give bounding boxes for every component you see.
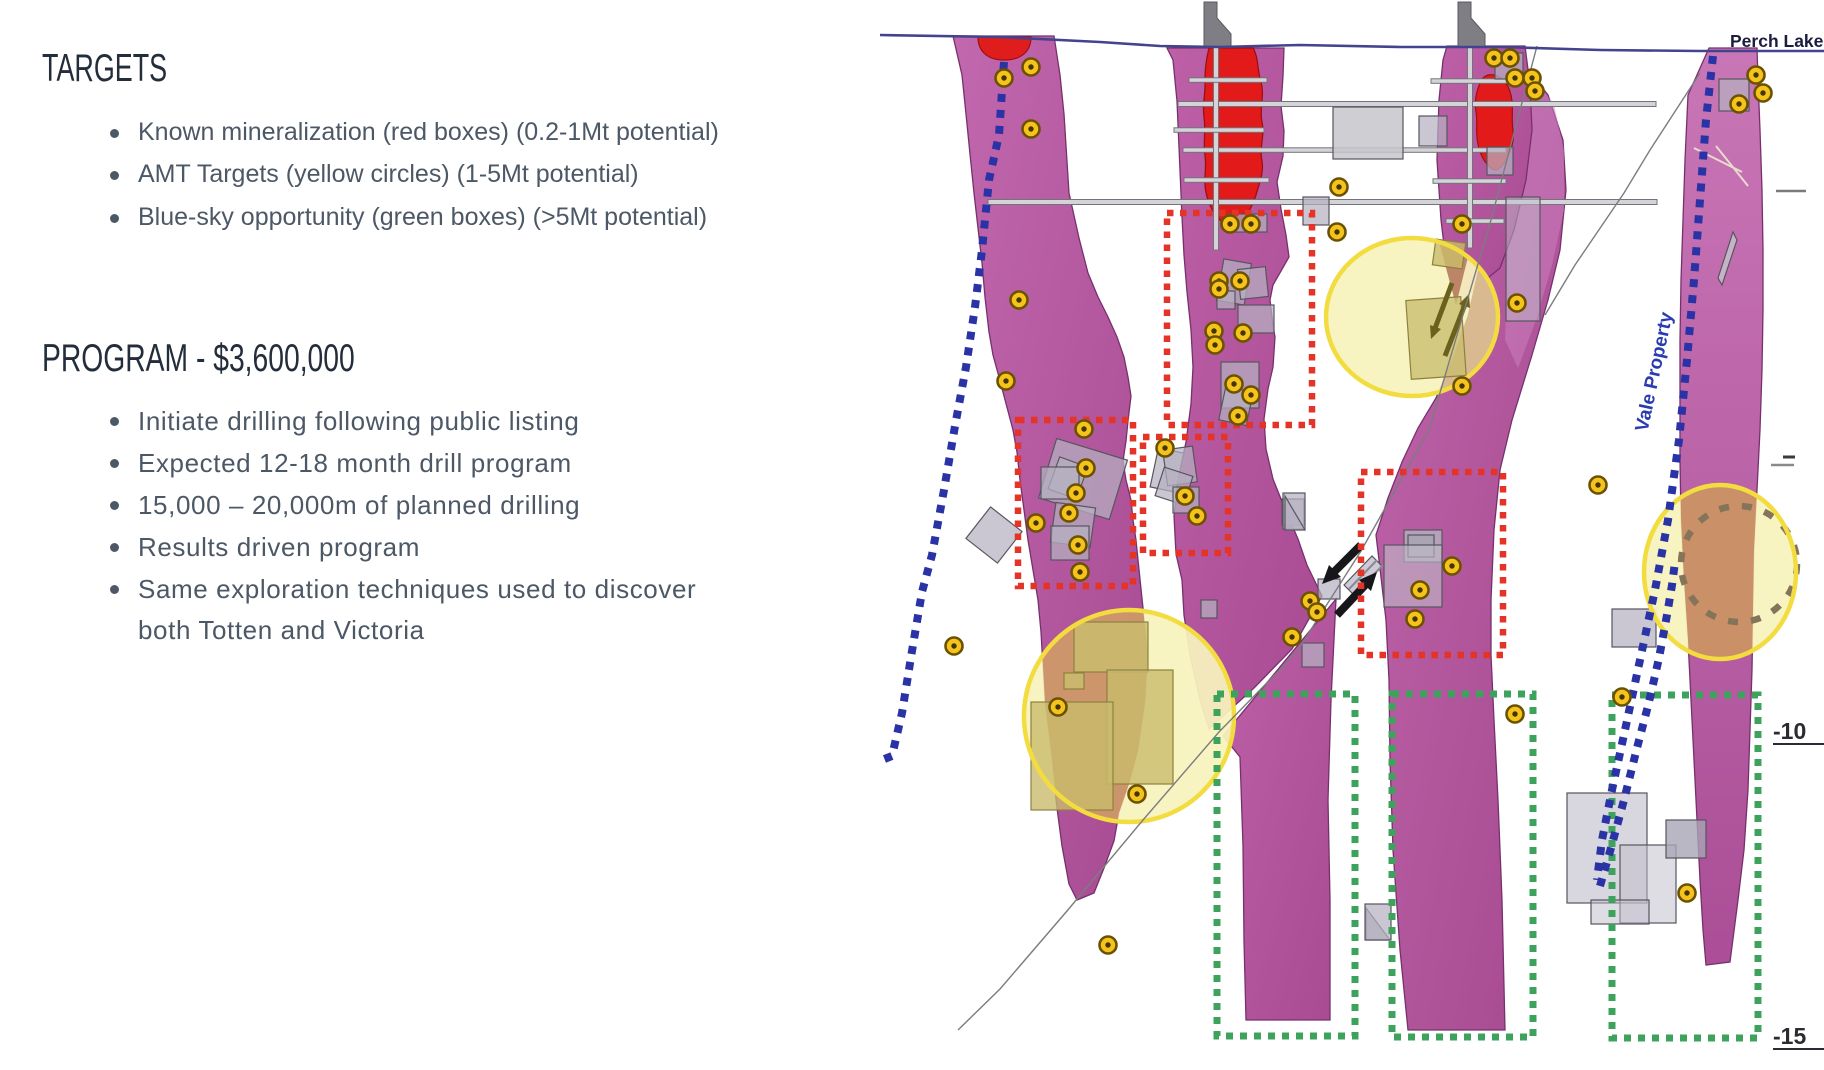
svg-text:-10: -10 <box>1773 718 1806 744</box>
svg-text:Perch Lake: Perch Lake <box>1730 31 1824 51</box>
svg-text:-15: -15 <box>1773 1023 1806 1049</box>
svg-text:Vale Property: Vale Property <box>1632 310 1678 434</box>
